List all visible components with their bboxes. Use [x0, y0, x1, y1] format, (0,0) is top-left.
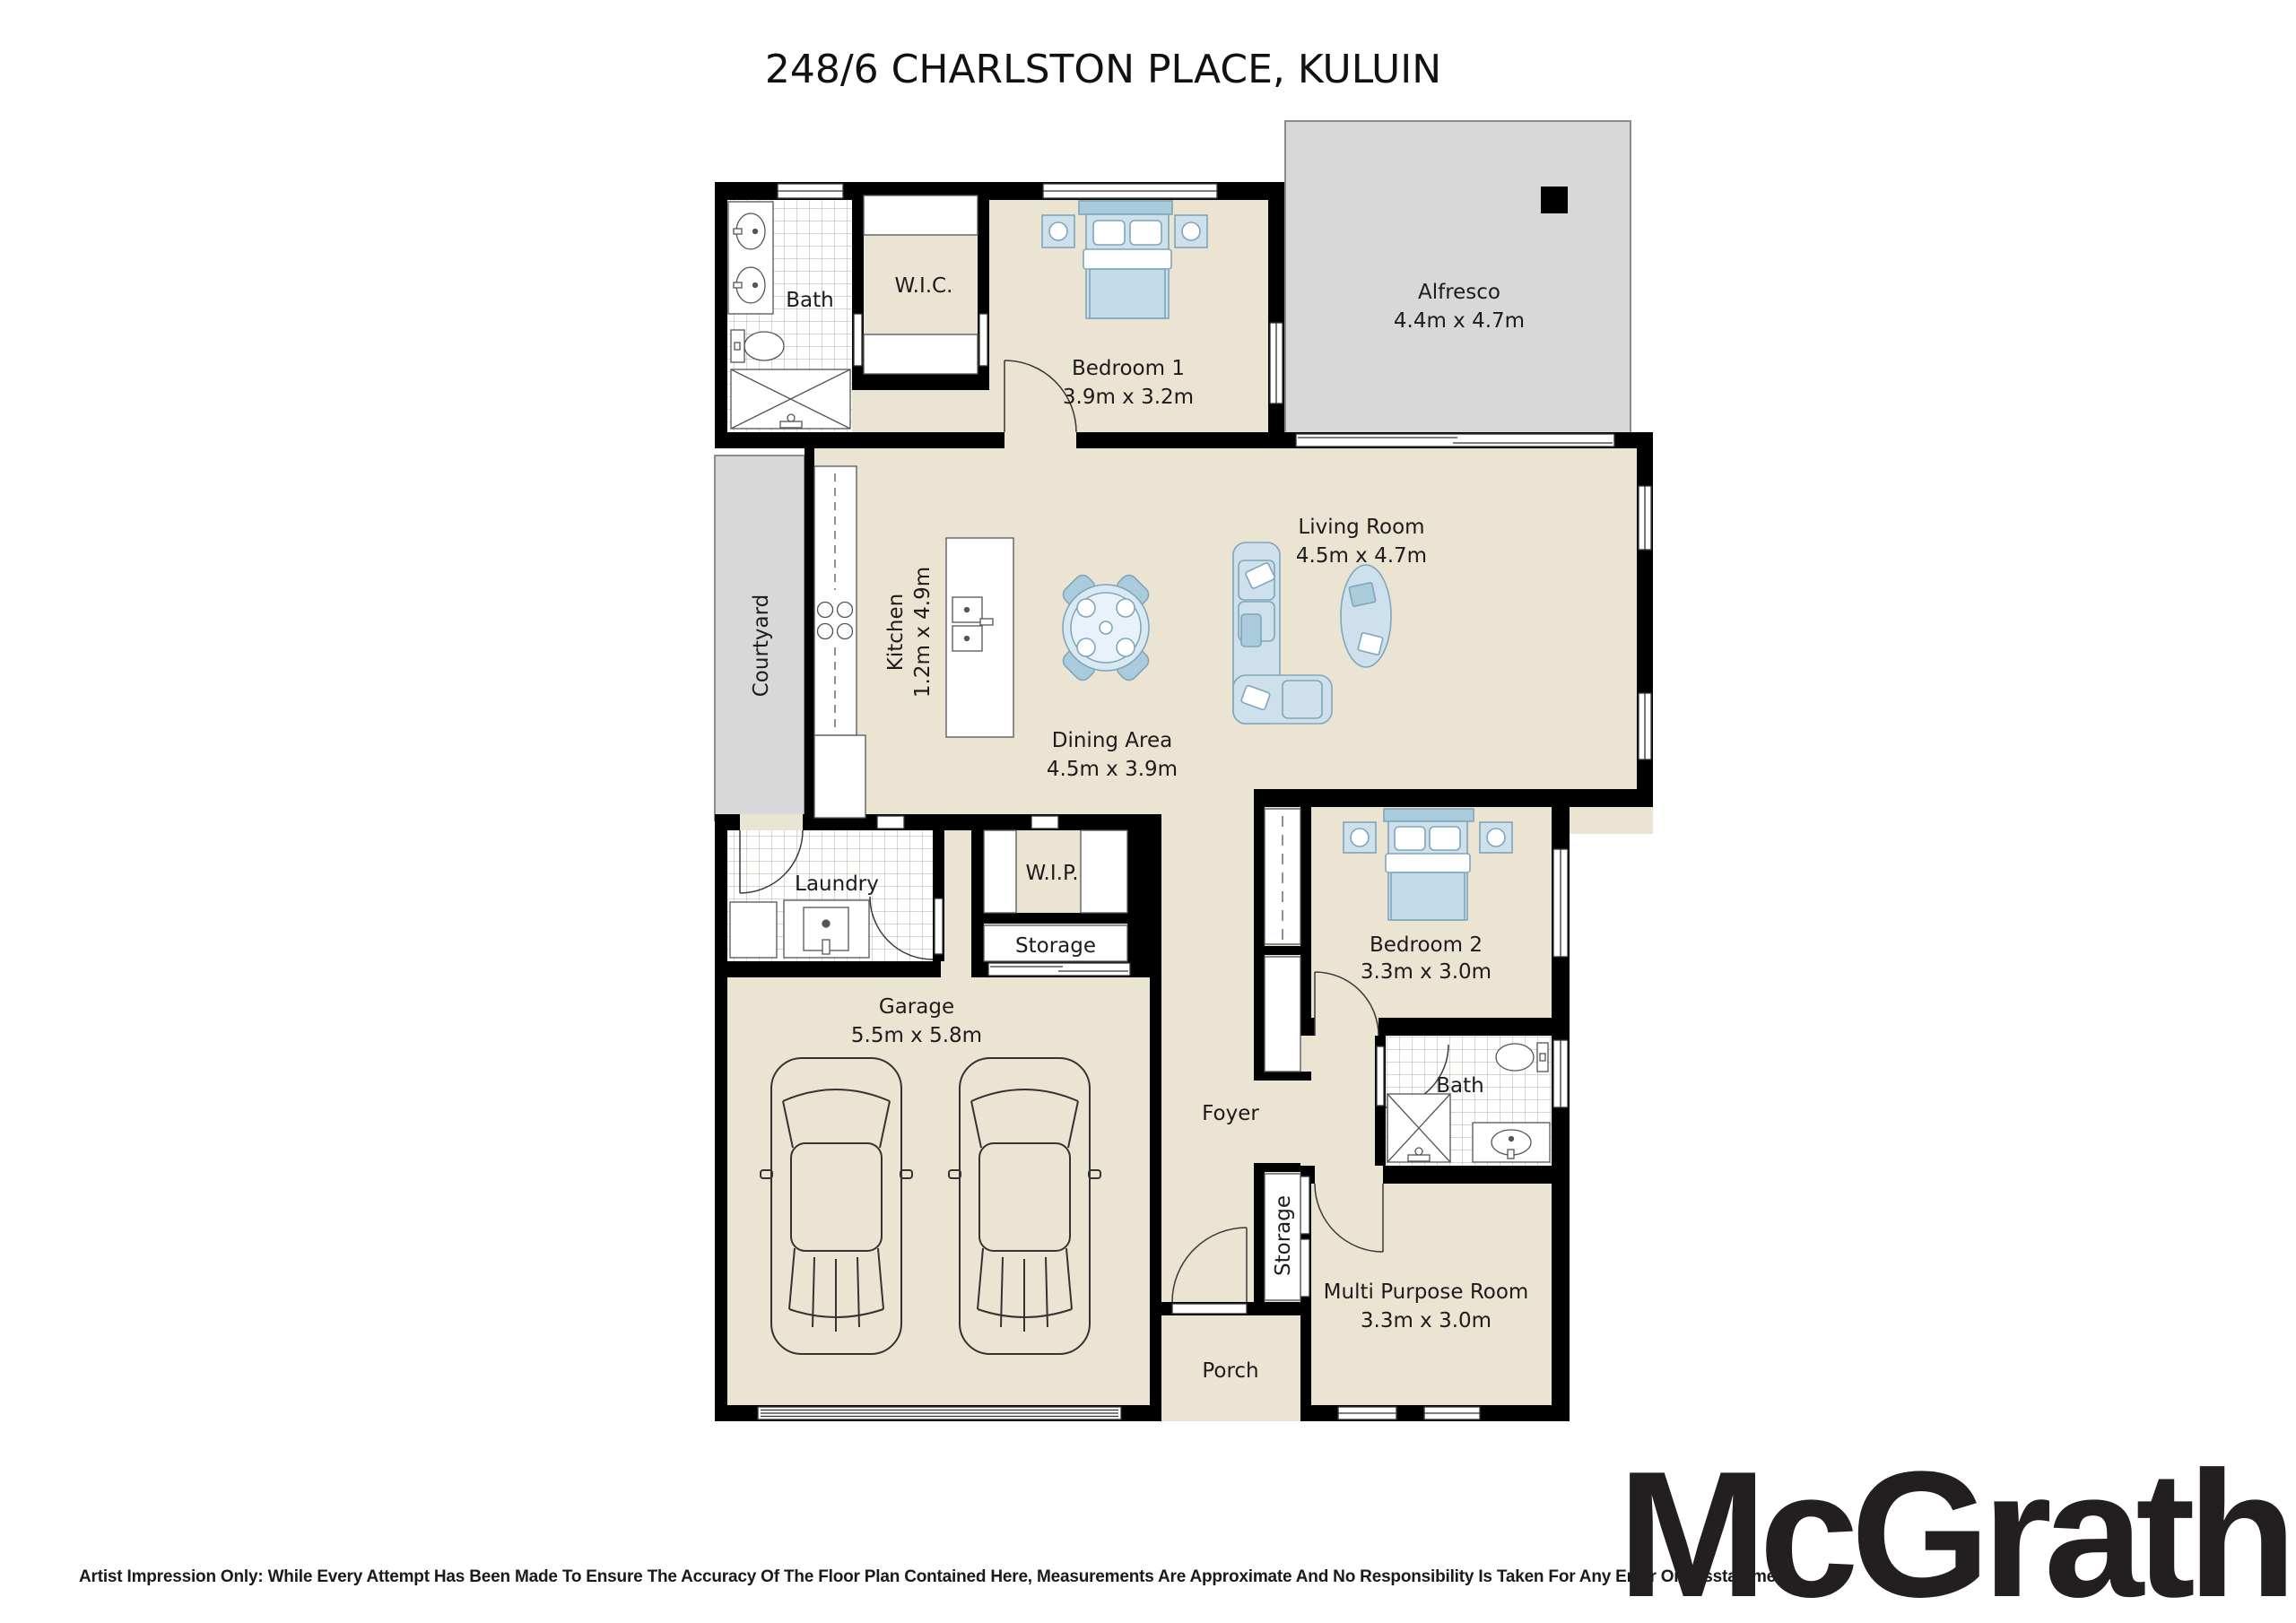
wic-shelf-bottom	[864, 334, 978, 374]
wic-shelf-top	[864, 195, 978, 235]
label-dining: Dining Area	[1052, 729, 1173, 752]
alfresco-pillar	[1541, 187, 1568, 213]
bath1-vanity-icon	[728, 202, 773, 314]
storage2-door-leaf-1	[1300, 1176, 1309, 1234]
dims-bedroom1: 3.9m x 3.2m	[1063, 386, 1194, 409]
dining-table-icon	[1060, 572, 1152, 683]
label-bedroom2: Bedroom 2	[1370, 933, 1483, 957]
wip-shelf-left	[984, 830, 1016, 913]
alfresco-sliding-door	[1296, 434, 1614, 447]
label-porch: Porch	[1202, 1359, 1258, 1383]
storage1-sliding-door	[988, 963, 1130, 976]
dims-living: 4.5m x 4.7m	[1296, 544, 1427, 568]
laundry-tub-icon	[730, 902, 777, 958]
label-kitchen: Kitchen	[884, 594, 908, 671]
mcgrath-logo: McGrath	[1618, 1445, 2289, 1623]
floorplan-page: 248/6 CHARLSTON PLACE, KULUIN	[0, 0, 2296, 1623]
label-living: Living Room	[1298, 516, 1424, 539]
floorplan-drawing: Bath W.I.C. Bedroom 1 3.9m x 3.2m Alfres…	[709, 108, 1677, 1444]
disclaimer-text: Artist Impression Only: While Every Atte…	[79, 1567, 1604, 1587]
label-mpr: Multi Purpose Room	[1324, 1280, 1529, 1304]
bath1-door-leaf	[854, 314, 862, 366]
linen-cupboard	[1265, 957, 1300, 1072]
label-wic: W.I.C.	[895, 274, 953, 298]
kitchen-island-icon	[946, 538, 1013, 737]
dims-bedroom2: 3.3m x 3.0m	[1361, 960, 1492, 984]
storage2-door-leaf-2	[1300, 1239, 1309, 1297]
bath2-shower-icon	[1387, 1094, 1450, 1162]
label-courtyard: Courtyard	[750, 595, 773, 698]
label-garage: Garage	[879, 995, 954, 1019]
label-foyer: Foyer	[1202, 1102, 1259, 1125]
bath2-vanity-icon	[1473, 1123, 1550, 1162]
laundry-door-leaf	[935, 898, 943, 954]
label-bedroom1: Bedroom 1	[1072, 357, 1185, 380]
label-laundry: Laundry	[795, 872, 879, 896]
rug-icon	[1341, 565, 1391, 667]
washing-machine-icon	[784, 900, 869, 958]
label-bath2: Bath	[1436, 1074, 1483, 1098]
bath2-toilet-icon	[1496, 1043, 1548, 1072]
dims-kitchen: 1.2m x 4.9m	[911, 567, 935, 698]
page-title: 248/6 CHARLSTON PLACE, KULUIN	[0, 47, 2206, 92]
kitchen-cabinet	[814, 735, 865, 818]
wic-door-leaf	[979, 314, 987, 366]
bath2-door-leaf	[1377, 1046, 1384, 1106]
label-storage2: Storage	[1272, 1195, 1295, 1276]
dims-garage: 5.5m x 5.8m	[851, 1024, 982, 1047]
label-bath1: Bath	[786, 289, 833, 312]
bath1-toilet-icon	[731, 330, 784, 362]
dims-dining: 4.5m x 3.9m	[1047, 758, 1178, 781]
front-door-opening	[1172, 1304, 1247, 1314]
wip-opening	[1031, 816, 1058, 829]
wip-shelf-right	[1081, 830, 1127, 913]
label-alfresco: Alfresco	[1418, 281, 1500, 304]
label-wip: W.I.P.	[1025, 862, 1078, 885]
label-storage1: Storage	[1015, 934, 1096, 958]
dims-mpr: 3.3m x 3.0m	[1361, 1309, 1492, 1332]
bath1-shower-icon	[731, 369, 850, 429]
dims-alfresco: 4.4m x 4.7m	[1394, 309, 1525, 333]
kitchen-niche	[877, 816, 904, 829]
